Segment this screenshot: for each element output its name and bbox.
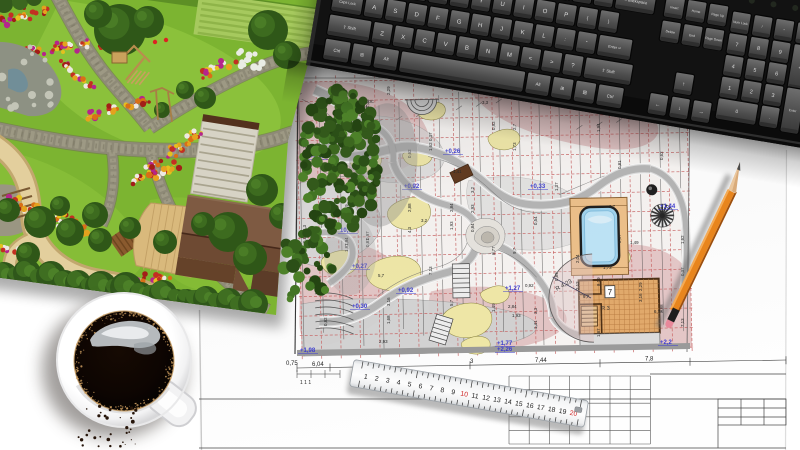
svg-text:14: 14 [504, 398, 513, 406]
svg-text:11: 11 [471, 392, 479, 400]
svg-text:12: 12 [482, 394, 491, 402]
svg-text:M: M [506, 52, 512, 59]
svg-text:17: 17 [536, 404, 545, 412]
svg-text:10: 10 [460, 391, 469, 399]
svg-text:18: 18 [547, 406, 556, 414]
svg-text:19: 19 [558, 408, 567, 416]
svg-text:→: → [698, 109, 704, 116]
svg-text:16: 16 [525, 402, 534, 410]
svg-text:13: 13 [493, 396, 502, 404]
svg-text:15: 15 [514, 400, 523, 408]
svg-text:←: ← [655, 102, 661, 109]
